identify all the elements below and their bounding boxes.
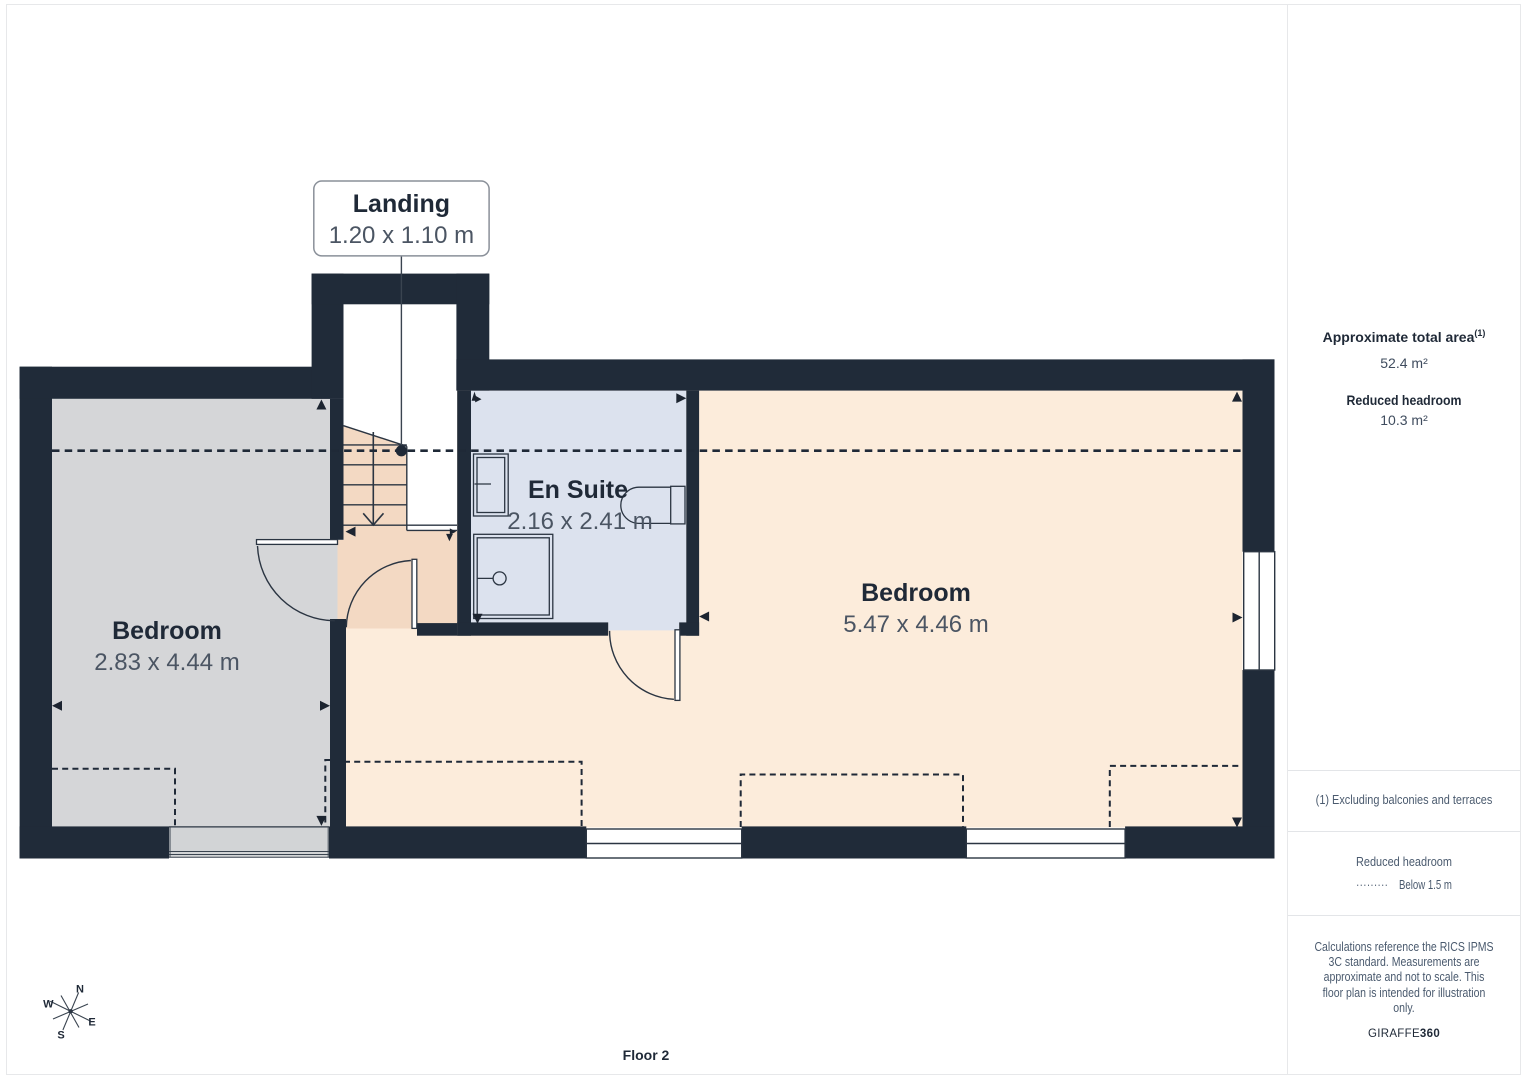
svg-text:Bedroom: Bedroom: [861, 579, 971, 607]
svg-text:2.16 x 2.41 m: 2.16 x 2.41 m: [507, 508, 652, 535]
svg-text:E: E: [88, 1017, 95, 1029]
svg-text:N: N: [76, 984, 84, 996]
svg-text:S: S: [57, 1029, 64, 1041]
svg-text:1.20 x 1.10 m: 1.20 x 1.10 m: [329, 222, 474, 249]
svg-text:Floor 2: Floor 2: [623, 1047, 670, 1063]
svg-text:2.83 x 4.44 m: 2.83 x 4.44 m: [94, 649, 239, 676]
svg-text:5.47 x 4.46 m: 5.47 x 4.46 m: [843, 611, 988, 638]
svg-text:Landing: Landing: [353, 190, 450, 218]
svg-text:Bedroom: Bedroom: [112, 617, 222, 645]
svg-text:W: W: [43, 998, 54, 1010]
svg-text:En Suite: En Suite: [528, 476, 628, 504]
